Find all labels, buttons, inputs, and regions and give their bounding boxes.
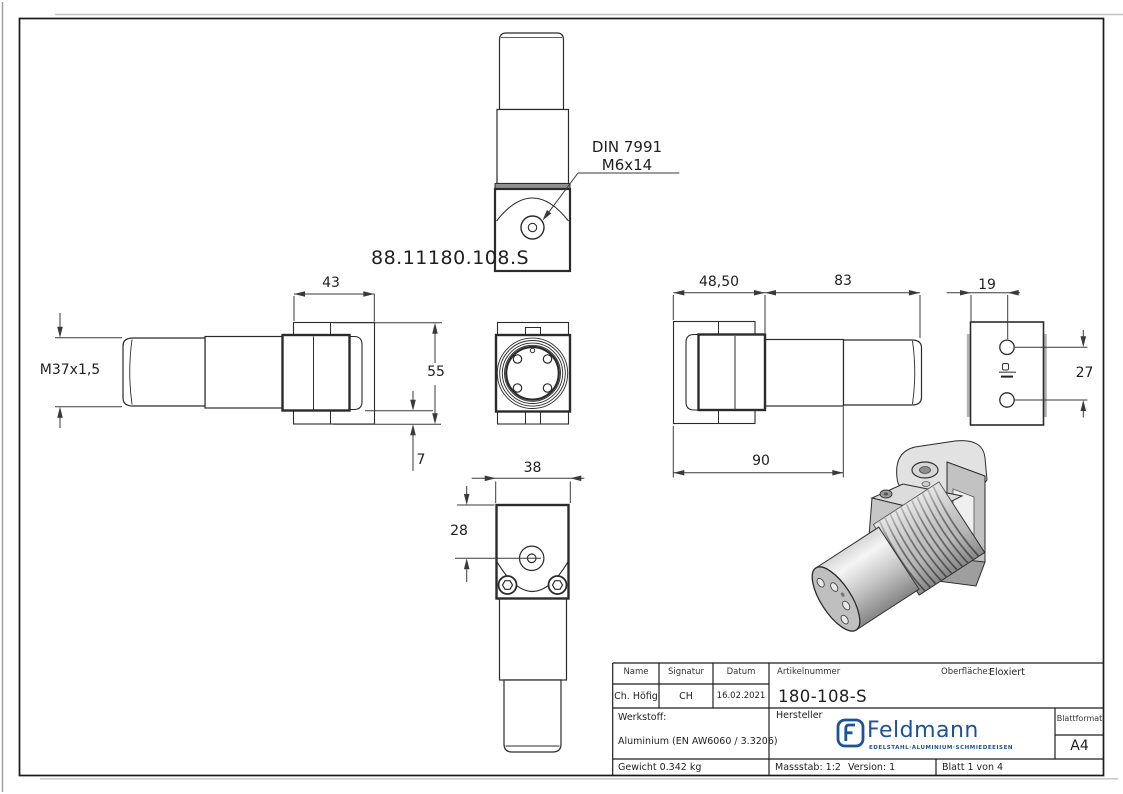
title-blattformat-label: Blattformat <box>1056 715 1103 723</box>
feldmann-logo-icon <box>836 718 865 748</box>
view-top <box>495 33 570 271</box>
dim-55: 55 <box>422 365 450 380</box>
view-bottom <box>497 505 569 752</box>
title-massstab: Massstab: 1:2 <box>775 763 841 773</box>
dim-27: 27 <box>1071 366 1098 381</box>
title-blatt: Blatt 1 von 4 <box>942 763 1003 773</box>
feldmann-logo-text: Feldmann <box>867 719 979 742</box>
title-oberflaeche-value: Eloxiert <box>989 668 1025 678</box>
title-artikelnummer-value: 180-108-S <box>778 688 867 705</box>
title-datum-value: 16.02.2021 <box>713 692 769 701</box>
dim-48-50: 48,50 <box>697 275 741 290</box>
title-werkstoff-label: Werkstoff: <box>618 713 666 723</box>
title-version: Version: 1 <box>848 763 895 773</box>
dim-90: 90 <box>748 454 774 469</box>
drawing-sheet: DIN 7991 M6x14 88.11180.108.S 43 M37x1,5… <box>0 0 1123 794</box>
title-signatur-label: Signatur <box>659 668 713 677</box>
dim-43: 43 <box>316 276 346 291</box>
title-hersteller-label: Hersteller <box>776 711 822 721</box>
view-left <box>123 323 375 425</box>
part-number-label: 88.11180.108.S <box>371 249 529 269</box>
title-signatur-value: CH <box>659 692 713 702</box>
callout-din: DIN 7991 <box>582 140 672 156</box>
view-front <box>496 323 570 425</box>
feldmann-logo-tagline: EDELSTAHL·ALUMINIUM·SCHMIEDEEISEN <box>869 746 1013 752</box>
title-datum-label: Datum <box>713 668 769 677</box>
view-3d <box>801 441 987 643</box>
title-artikelnummer-label: Artikelnummer <box>777 668 840 677</box>
dim-38: 38 <box>520 461 545 476</box>
title-gewicht: Gewicht 0.342 kg <box>618 763 701 773</box>
dim-7: 7 <box>413 453 429 468</box>
dim-83: 83 <box>831 274 855 289</box>
dim-m37: M37x1,5 <box>33 363 107 378</box>
title-blattformat-value: A4 <box>1056 739 1103 754</box>
dim-19: 19 <box>976 278 998 293</box>
view-plate <box>967 322 1047 425</box>
dim-28: 28 <box>445 524 473 539</box>
title-werkstoff-value: Aluminium (EN AW6060 / 3.3206) <box>618 737 778 747</box>
title-name-value: Ch. Höfig <box>613 692 659 702</box>
title-name-label: Name <box>613 668 659 677</box>
title-oberflaeche-label: Oberfläche: <box>941 668 991 677</box>
view-right <box>674 322 922 424</box>
callout-screw-size: M6x14 <box>582 158 672 174</box>
